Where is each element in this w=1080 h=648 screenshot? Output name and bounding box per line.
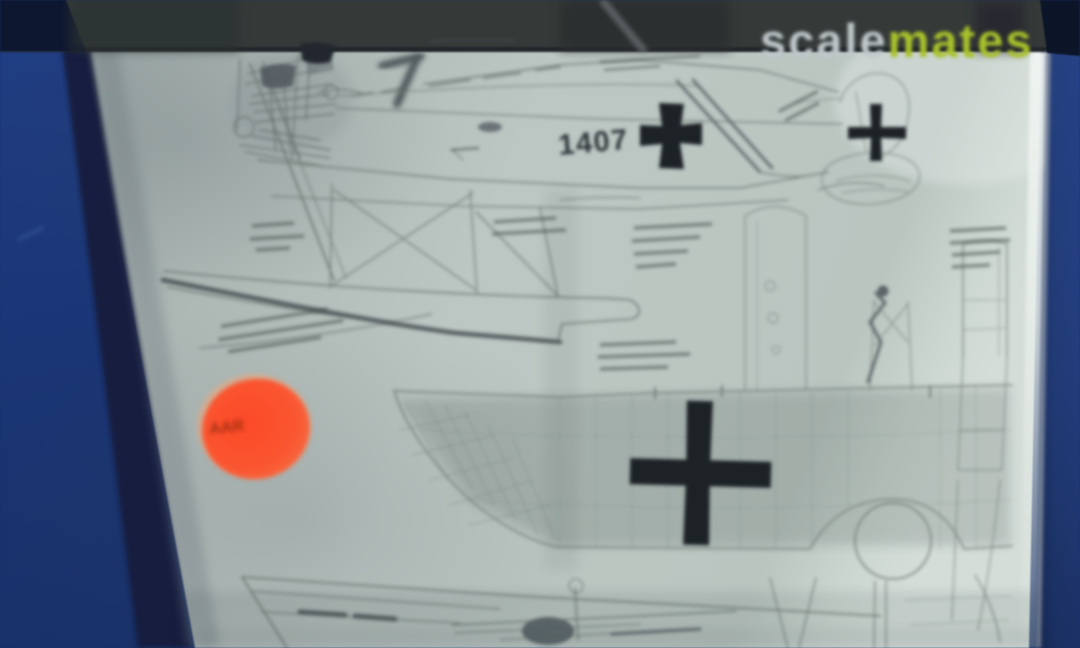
svg-text:scalemates: scalemates	[760, 14, 1033, 67]
svg-text:1407: 1407	[557, 124, 630, 162]
